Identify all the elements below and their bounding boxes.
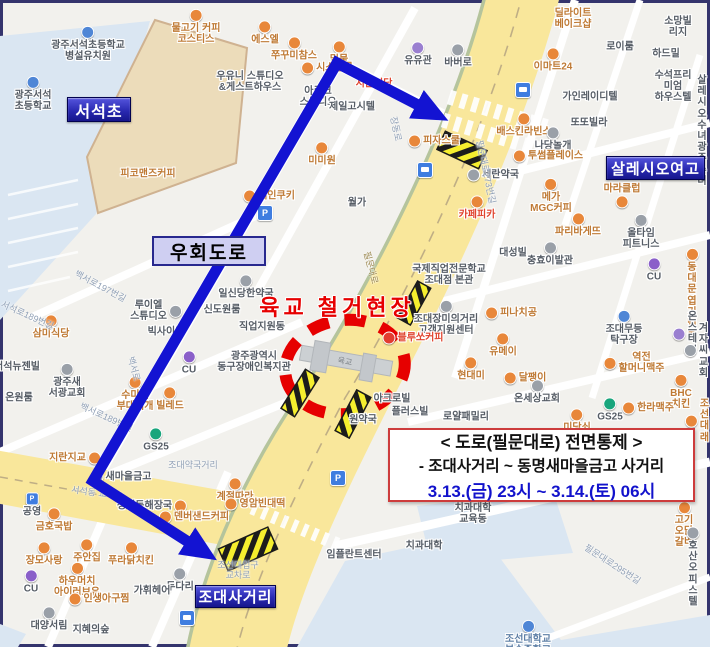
place-badge: 서석초: [67, 97, 131, 122]
closure-notice-box: < 도로(필문대로) 전면통제 > - 조대사거리 ~ 동명새마을금고 사거리 …: [388, 428, 695, 502]
traffic-notice-map: 육교 물고기 커피 코스티스에스엘쭈꾸미참스밀물시스살롱유유관바버로광주서석초등…: [0, 0, 710, 647]
detour-label-box: 우회도로: [152, 236, 266, 266]
place-badge: 살레시오여고: [606, 156, 705, 180]
notice-time: 3.13.(금) 23시 ~ 3.14.(토) 06시: [428, 477, 655, 502]
notice-range: - 조대사거리 ~ 동명새마을금고 사거리: [419, 454, 664, 476]
notice-title: < 도로(필문대로) 전면통제 >: [441, 428, 643, 453]
demolition-site-title: 육교 철거현장: [259, 290, 415, 322]
detour-route-arrow-top: [337, 63, 420, 106]
place-badge: 조대사거리: [195, 585, 276, 608]
